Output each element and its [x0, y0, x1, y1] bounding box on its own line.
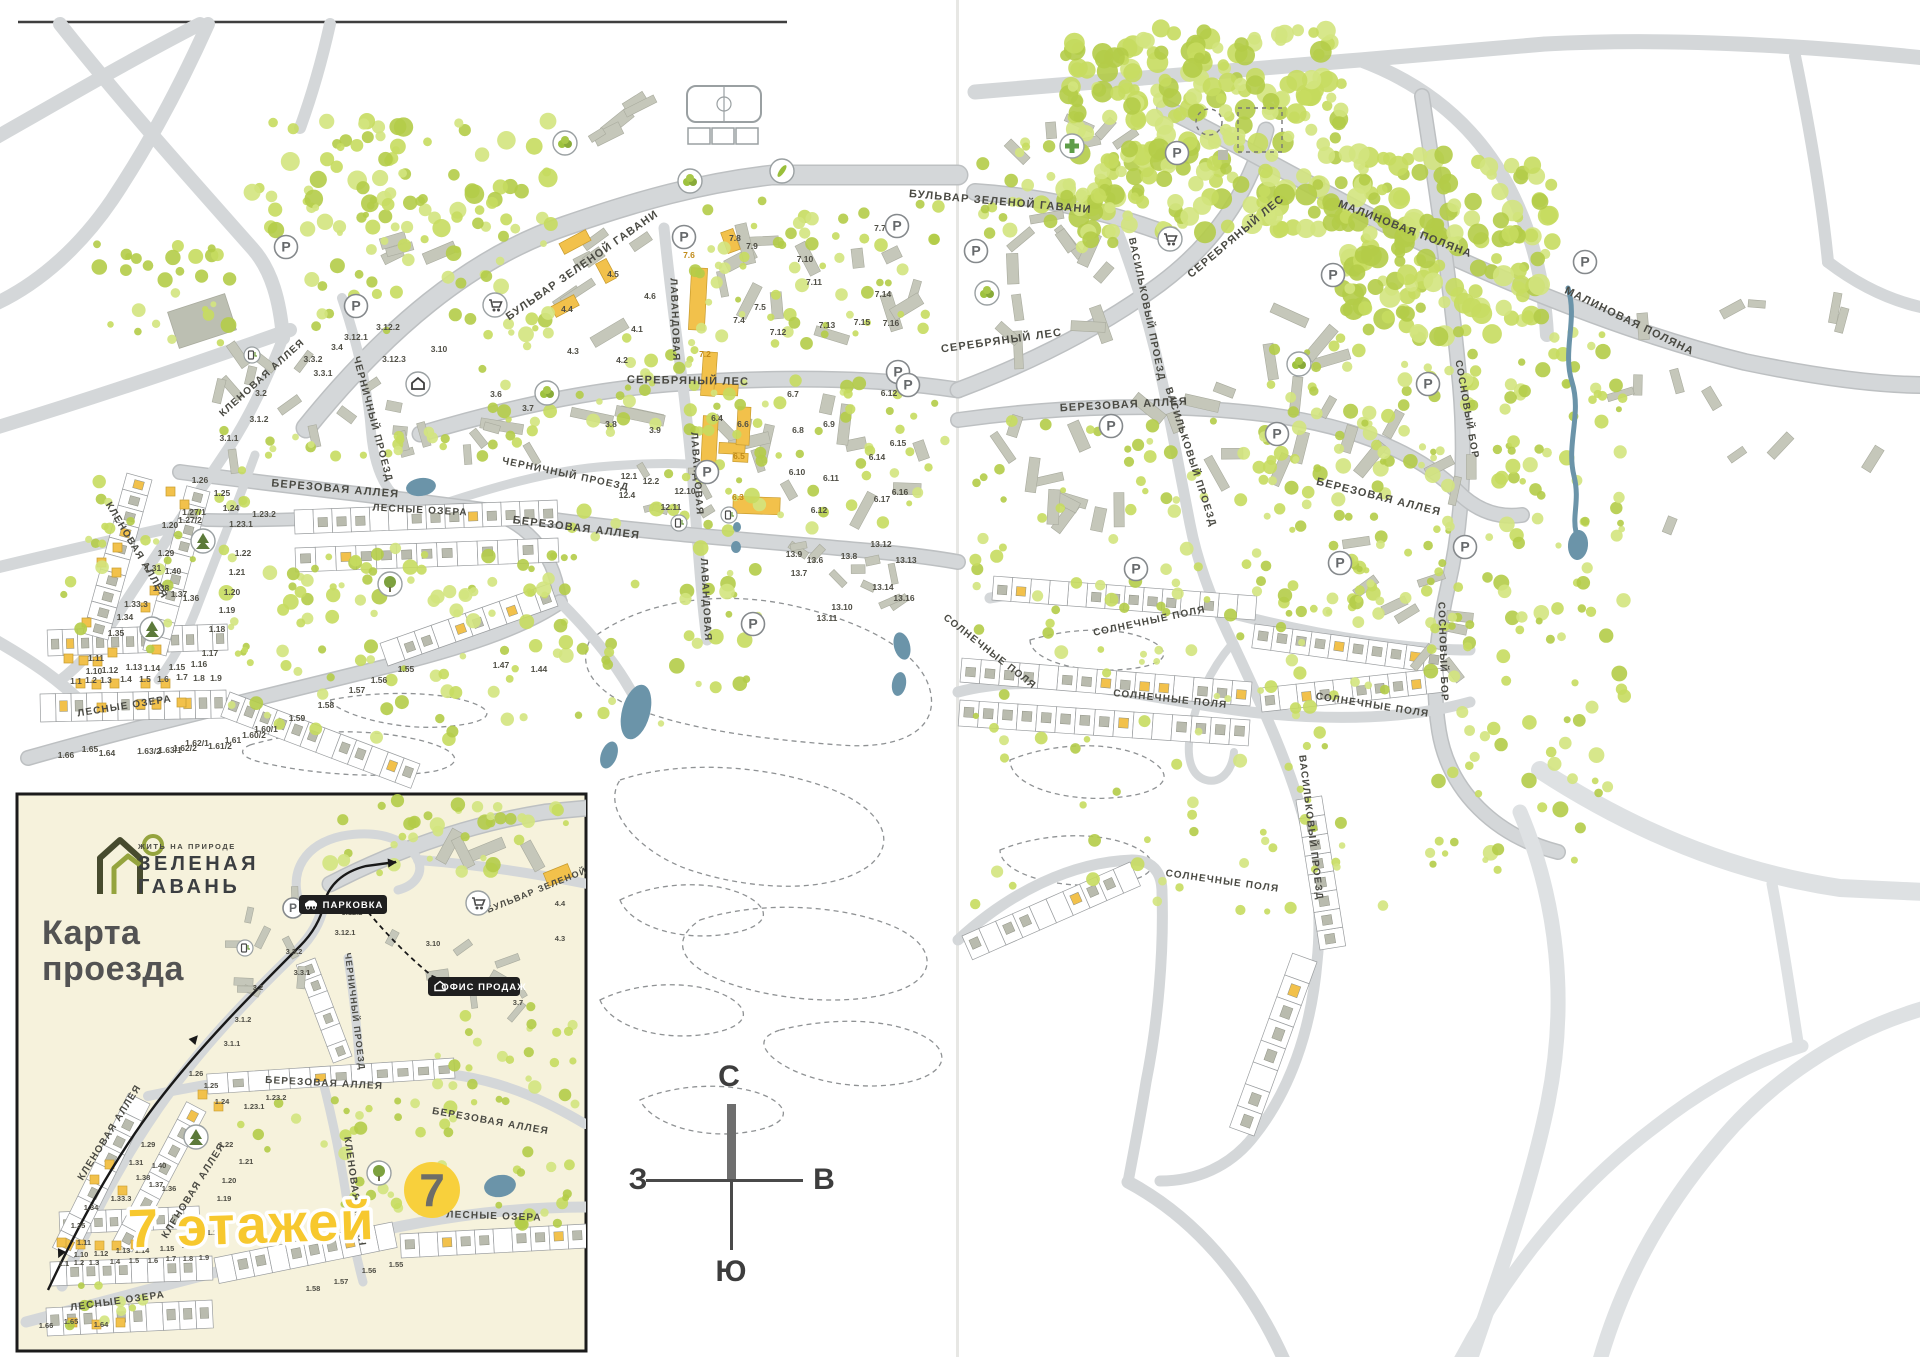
building-number: 3.12.1 — [335, 928, 356, 937]
bush-icon — [678, 169, 702, 193]
building-number: 7.11 — [806, 277, 822, 287]
inset-title: Карта проезда — [42, 915, 302, 987]
building-number: 1.55 — [389, 1260, 404, 1269]
bush-icon — [553, 131, 577, 155]
inset-title-line1: Карта — [42, 915, 302, 951]
svg-text:Р: Р — [702, 464, 711, 480]
building-number: 1.9 — [210, 673, 222, 683]
building-number: 1.31 — [145, 563, 162, 573]
building-number: 13.8 — [841, 551, 858, 561]
building-number: 13.13 — [895, 555, 917, 565]
building-number: 1.23.2 — [266, 1093, 287, 1102]
bush-icon — [1287, 352, 1311, 376]
svg-text:Р: Р — [903, 377, 912, 393]
compass-west-arm — [646, 1179, 731, 1182]
building-number: 1.33.3 — [124, 599, 148, 609]
building-number: 1.58 — [306, 1284, 321, 1293]
building-number: 13.12 — [870, 539, 892, 549]
building-number: 6.12 — [811, 505, 828, 515]
compass-rose: С В Ю З — [598, 1058, 848, 1298]
building-number: 4.5 — [607, 269, 619, 279]
compass-west-label: З — [629, 1163, 648, 1197]
cart-icon — [1158, 227, 1182, 251]
floors-badge: 7 — [404, 1162, 460, 1218]
building-number: 13.9 — [786, 549, 803, 559]
building-number: 1.29 — [158, 548, 175, 558]
building-number: 1.21 — [239, 1157, 254, 1166]
building-number: 7.16 — [883, 318, 900, 328]
building-number: 3.9 — [649, 425, 661, 435]
building-number: 13.11 — [817, 613, 838, 623]
building-number: 6.4 — [711, 413, 723, 423]
compass-east-arm — [731, 1179, 803, 1182]
building-number: 13.10 — [831, 602, 853, 612]
building-number: 3.6 — [490, 389, 502, 399]
building-number: 1.24 — [223, 503, 240, 513]
building-number: 3.10 — [431, 344, 448, 354]
building-number: 7.5 — [754, 302, 766, 312]
parking-icon: Р — [897, 374, 920, 397]
building-number: 6.3 — [732, 492, 744, 502]
pinec-icon — [191, 529, 215, 553]
building-number: 1.24 — [215, 1097, 230, 1106]
brand-logo-block: ЖИТЬ НА ПРИРОДЕ ЗЕЛЕНАЯ ГАВАНЬ — [90, 826, 350, 921]
parking-icon: Р — [696, 461, 719, 484]
inset-title-line2: проезда — [42, 951, 302, 987]
building-number: 1.55 — [398, 664, 415, 674]
svg-text:Р: Р — [1106, 418, 1115, 434]
building-number: 1.8 — [193, 673, 205, 683]
building-number: 1.34 — [117, 612, 134, 622]
svg-text:7: 7 — [419, 1164, 445, 1216]
building-number: 1.19 — [219, 605, 236, 615]
svg-text:Р: Р — [1131, 561, 1140, 577]
brand-tagline: ЖИТЬ НА ПРИРОДЕ — [138, 842, 236, 851]
brand-name-line2: ГАВАНЬ — [138, 876, 240, 899]
building-number: 1.20 — [224, 587, 241, 597]
parking-icon: Р — [886, 215, 909, 238]
building-number: 1.18 — [209, 624, 226, 634]
parking-icon: Р — [1100, 415, 1123, 438]
building-number: 4.3 — [567, 346, 579, 356]
building-number: 6.5 — [733, 451, 745, 461]
building-number: 13.14 — [872, 582, 894, 592]
building-number: 3.12.1 — [344, 332, 368, 342]
building-number: 7.14 — [875, 289, 892, 299]
building-number: 6.16 — [892, 487, 909, 497]
building-number: 1.47 — [493, 660, 510, 670]
parking-icon: Р — [1329, 552, 1352, 575]
building-number: 1.2 — [74, 1258, 84, 1267]
building-number: 6.6 — [737, 419, 749, 429]
cart-icon — [483, 293, 507, 317]
building-number: 3.1.2 — [250, 414, 269, 424]
svg-text:Р: Р — [1460, 539, 1469, 555]
building-number: 7.6 — [683, 250, 695, 260]
compass-north-label: С — [718, 1060, 740, 1094]
building-number: 7.15 — [854, 317, 871, 327]
building-number: 1.64 — [99, 748, 116, 758]
pinec-icon — [140, 617, 164, 641]
building-number: 7.13 — [819, 320, 836, 330]
building-number: 1.20 — [222, 1176, 237, 1185]
parking-icon: Р — [275, 236, 298, 259]
svg-text:Р: Р — [1580, 254, 1589, 270]
svg-text:Р: Р — [748, 616, 757, 632]
building-number: 6.15 — [890, 438, 907, 448]
building-number: 3.7 — [522, 403, 534, 413]
svg-text:Р: Р — [679, 229, 688, 245]
building-number: 1.63/1 — [158, 745, 182, 755]
building-number: 7.9 — [746, 241, 758, 251]
parking-icon: Р — [673, 226, 696, 249]
parking-icon: Р — [1125, 558, 1148, 581]
building-number: 3.1.1 — [220, 433, 239, 443]
building-number: 4.2 — [616, 355, 628, 365]
building-number: 7.7 — [874, 223, 886, 233]
building-number: 1.14 — [144, 663, 161, 673]
compass-south-arm — [730, 1180, 733, 1250]
svg-text:Р: Р — [892, 218, 901, 234]
building-number: 1.20 — [162, 520, 179, 530]
building-number: 13.16 — [893, 593, 915, 603]
svg-text:Р: Р — [1328, 267, 1337, 283]
building-number: 12.4 — [619, 490, 636, 500]
leaf-icon — [770, 159, 794, 183]
building-number: 1.11 — [77, 1238, 91, 1247]
building-number: 1.7 — [176, 672, 188, 682]
parking-icon: Р — [742, 613, 765, 636]
building-number: 1.16 — [191, 659, 208, 669]
building-number: 6.9 — [823, 419, 835, 429]
building-number: 1.1 — [59, 1259, 69, 1268]
building-number: 7.2 — [699, 349, 711, 359]
svg-text:Р: Р — [281, 239, 290, 255]
parking-icon: Р — [965, 240, 988, 263]
ev-icon — [671, 515, 687, 531]
building-number: 1.66 — [39, 1321, 54, 1330]
building-number: 3.2 — [255, 388, 267, 398]
building-number: 4.3 — [555, 934, 565, 943]
building-number: 3.3.1 — [314, 368, 333, 378]
building-number: 12.10 — [674, 486, 696, 496]
building-number: 6.8 — [792, 425, 804, 435]
cross-icon — [1060, 134, 1084, 158]
building-number: 1.1 — [70, 676, 82, 686]
building-number: 1.13 — [126, 662, 143, 672]
building-number: 1.44 — [531, 664, 548, 674]
parking-icon: Р — [1266, 423, 1289, 446]
svg-text:Р: Р — [1335, 555, 1344, 571]
building-number: 13.6 — [807, 555, 824, 565]
building-number: 4.4 — [555, 899, 566, 908]
building-number: 1.36 — [162, 1184, 177, 1193]
building-number: 1.58 — [318, 700, 335, 710]
building-number: 1.25 — [214, 488, 231, 498]
building-number: 1.2 — [85, 675, 97, 685]
building-number: 1.17 — [202, 648, 219, 658]
parking-icon: Р — [1417, 373, 1440, 396]
parking-icon: Р — [1454, 536, 1477, 559]
building-number: 1.15 — [169, 662, 186, 672]
tree-icon — [378, 572, 402, 596]
svg-text:Р: Р — [351, 298, 360, 314]
building-number: 1.63/2 — [137, 746, 161, 756]
building-number: 1.60/2 — [242, 730, 266, 740]
building-number: 3.12.2 — [376, 322, 400, 332]
svg-text:Р: Р — [971, 243, 980, 259]
building-number: 1.21 — [229, 567, 246, 577]
building-number: 6.14 — [869, 452, 886, 462]
building-number: 3.3.2 — [304, 354, 323, 364]
floors-caption: 7 этажей — [127, 1191, 376, 1260]
building-number: 1.40 — [152, 1161, 167, 1170]
building-number: 1.23.1 — [244, 1102, 265, 1111]
building-number: 3.4 — [331, 342, 343, 352]
building-number: 1.6 — [157, 674, 169, 684]
ev-icon — [244, 347, 260, 363]
building-number: 6.10 — [789, 467, 806, 477]
building-number: 4.4 — [561, 304, 573, 314]
sales-office-badge: ОФИС ПРОДАЖ — [428, 977, 527, 996]
compass-south-label: Ю — [716, 1255, 747, 1289]
building-number: 1.56 — [371, 675, 388, 685]
cart-icon — [466, 891, 490, 915]
compass-north-arm — [727, 1104, 736, 1180]
svg-text:Р: Р — [1272, 426, 1281, 442]
building-number: 1.66 — [58, 750, 75, 760]
building-number: 7.8 — [729, 233, 741, 243]
building-number: 1.3 — [89, 1258, 99, 1267]
building-number: 1.34 — [84, 1203, 99, 1212]
building-number: 1.35 — [108, 628, 125, 638]
parking-icon: Р — [345, 295, 368, 318]
tree-icon — [367, 1161, 391, 1185]
building-number: 1.57 — [349, 685, 366, 695]
building-number: 1.29 — [141, 1140, 156, 1149]
building-number: 1.25 — [204, 1081, 219, 1090]
building-number: 1.22 — [219, 1140, 234, 1149]
building-number: 1.4 — [120, 674, 132, 684]
building-number: 1.5 — [139, 674, 151, 684]
building-number: 1.12 — [94, 1249, 109, 1258]
building-number: 12.2 — [643, 476, 660, 486]
building-number: 1.26 — [192, 475, 209, 485]
building-number: 1.23.2 — [252, 509, 276, 519]
building-number: 3.10 — [426, 939, 441, 948]
building-number: 1.65 — [82, 744, 99, 754]
building-number: 3.8 — [605, 419, 617, 429]
svg-text:ОФИС ПРОДАЖ: ОФИС ПРОДАЖ — [441, 982, 526, 993]
parking-icon: Р — [1322, 264, 1345, 287]
building-number: 1.26 — [189, 1069, 204, 1078]
building-number: 1.27/2 — [178, 515, 202, 525]
street-label: СЕРЕБРЯНЫЙ ЛЕС — [627, 373, 750, 388]
svg-text:Р: Р — [1423, 376, 1432, 392]
building-number: 4.1 — [631, 324, 643, 334]
svg-text:Р: Р — [1172, 145, 1181, 161]
building-number: 1.56 — [362, 1266, 377, 1275]
compass-east-label: В — [813, 1163, 835, 1197]
building-number: 6.12 — [881, 388, 898, 398]
building-number: 13.7 — [791, 568, 808, 578]
building-number: 1.22 — [235, 548, 252, 558]
building-number: 12.11 — [661, 502, 682, 512]
building-number: 4.6 — [644, 291, 656, 301]
building-number: 1.57 — [334, 1277, 349, 1286]
building-number: 3.1.1 — [224, 1039, 241, 1048]
building-number: 1.59 — [289, 713, 306, 723]
building-number: 1.64 — [94, 1320, 109, 1329]
building-number: 1.31 — [129, 1158, 144, 1167]
building-number: 6.17 — [874, 494, 891, 504]
brand-name-line1: ЗЕЛЕНАЯ — [138, 853, 259, 876]
parking-icon: Р — [1574, 251, 1597, 274]
ev-icon — [721, 507, 737, 523]
building-number: 6.11 — [823, 473, 839, 483]
building-number: 7.12 — [770, 327, 787, 337]
building-number: 1.3 — [100, 675, 112, 685]
building-number: 1.23.1 — [229, 519, 253, 529]
map-canvas: БУЛЬВАР ЗЕЛЕНОЙ ГАВАНИБУЛЬВАР ЗЕЛЕНОЙ ГА… — [0, 0, 1920, 1357]
building-number: 1.11 — [88, 653, 104, 663]
building-number: 1.65 — [64, 1317, 79, 1326]
building-number: 1.35 — [71, 1221, 86, 1230]
map-svg: БУЛЬВАР ЗЕЛЕНОЙ ГАВАНИБУЛЬВАР ЗЕЛЕНОЙ ГА… — [0, 0, 1920, 1357]
building-number: 3.7 — [513, 998, 523, 1007]
building-number: 12.1 — [621, 471, 638, 481]
bush-icon — [535, 381, 559, 405]
pinec-icon — [184, 1125, 208, 1149]
parking-icon: Р — [1166, 142, 1189, 165]
building-number: 3.12.3 — [382, 354, 406, 364]
building-number: 7.4 — [733, 315, 745, 325]
building-number: 1.38 — [153, 583, 170, 593]
building-number: 1.61/2 — [208, 741, 232, 751]
bush-icon — [975, 281, 999, 305]
building-number: 7.10 — [797, 254, 814, 264]
building-number: 1.36 — [183, 593, 200, 603]
building-number: 1.12 — [102, 665, 119, 675]
building-number: 6.7 — [787, 389, 799, 399]
building-number: 1.40 — [165, 566, 182, 576]
building-number: 1.4 — [110, 1257, 121, 1266]
building-number: 3.1.2 — [235, 1015, 252, 1024]
house-icon — [406, 372, 430, 396]
